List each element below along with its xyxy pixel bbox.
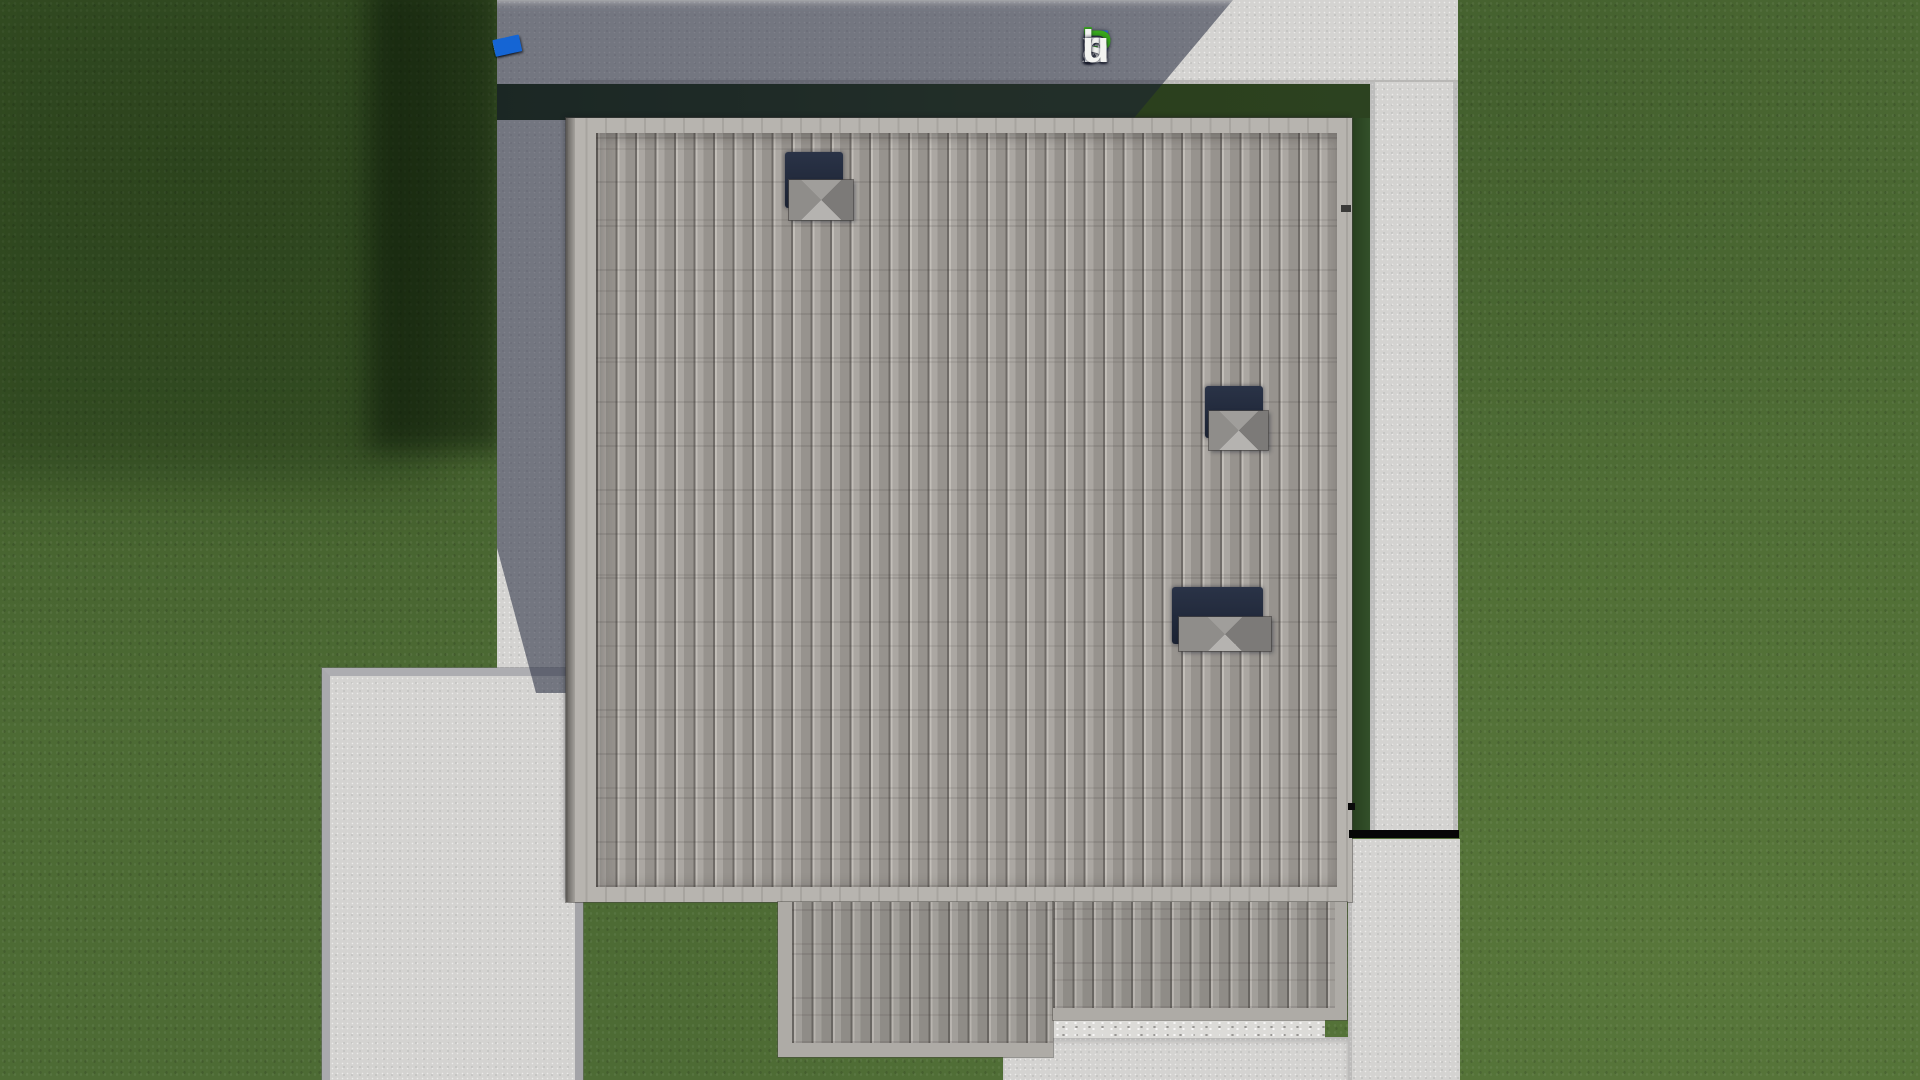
- lower-roof-right-tiles: [1053, 902, 1335, 1008]
- lower-roof-left-tiles: [792, 902, 1053, 1043]
- lower-roof-right: [1053, 902, 1347, 1020]
- aerial-render-canvas: FıxPlans.ru: [0, 0, 1920, 1080]
- stone-edge-strip: [1053, 1020, 1325, 1038]
- step-shadow-line: [1349, 830, 1459, 838]
- lower-roof-left: [778, 902, 1053, 1057]
- fence-segment: [492, 34, 522, 56]
- roof-left-edge-shade: [566, 118, 575, 902]
- chimney-2-cap: [1209, 411, 1268, 450]
- lawn-deep-shadow: [368, 0, 504, 452]
- chimney-3-cap: [1179, 617, 1271, 651]
- left-patio: [322, 668, 583, 1080]
- watermark-letter: u: [1082, 21, 1109, 73]
- eave-notch: [1341, 205, 1351, 212]
- dark-marker-dot: [1348, 803, 1355, 810]
- chimney-1-cap: [789, 180, 853, 220]
- main-roof: [566, 118, 1352, 902]
- bottom-slab: [1003, 1037, 1348, 1080]
- roof-tiles: [596, 133, 1337, 887]
- right-walkway: [1370, 82, 1458, 832]
- shaded-grass-strip-right: [1352, 118, 1370, 834]
- bottom-right-patio: [1348, 839, 1460, 1080]
